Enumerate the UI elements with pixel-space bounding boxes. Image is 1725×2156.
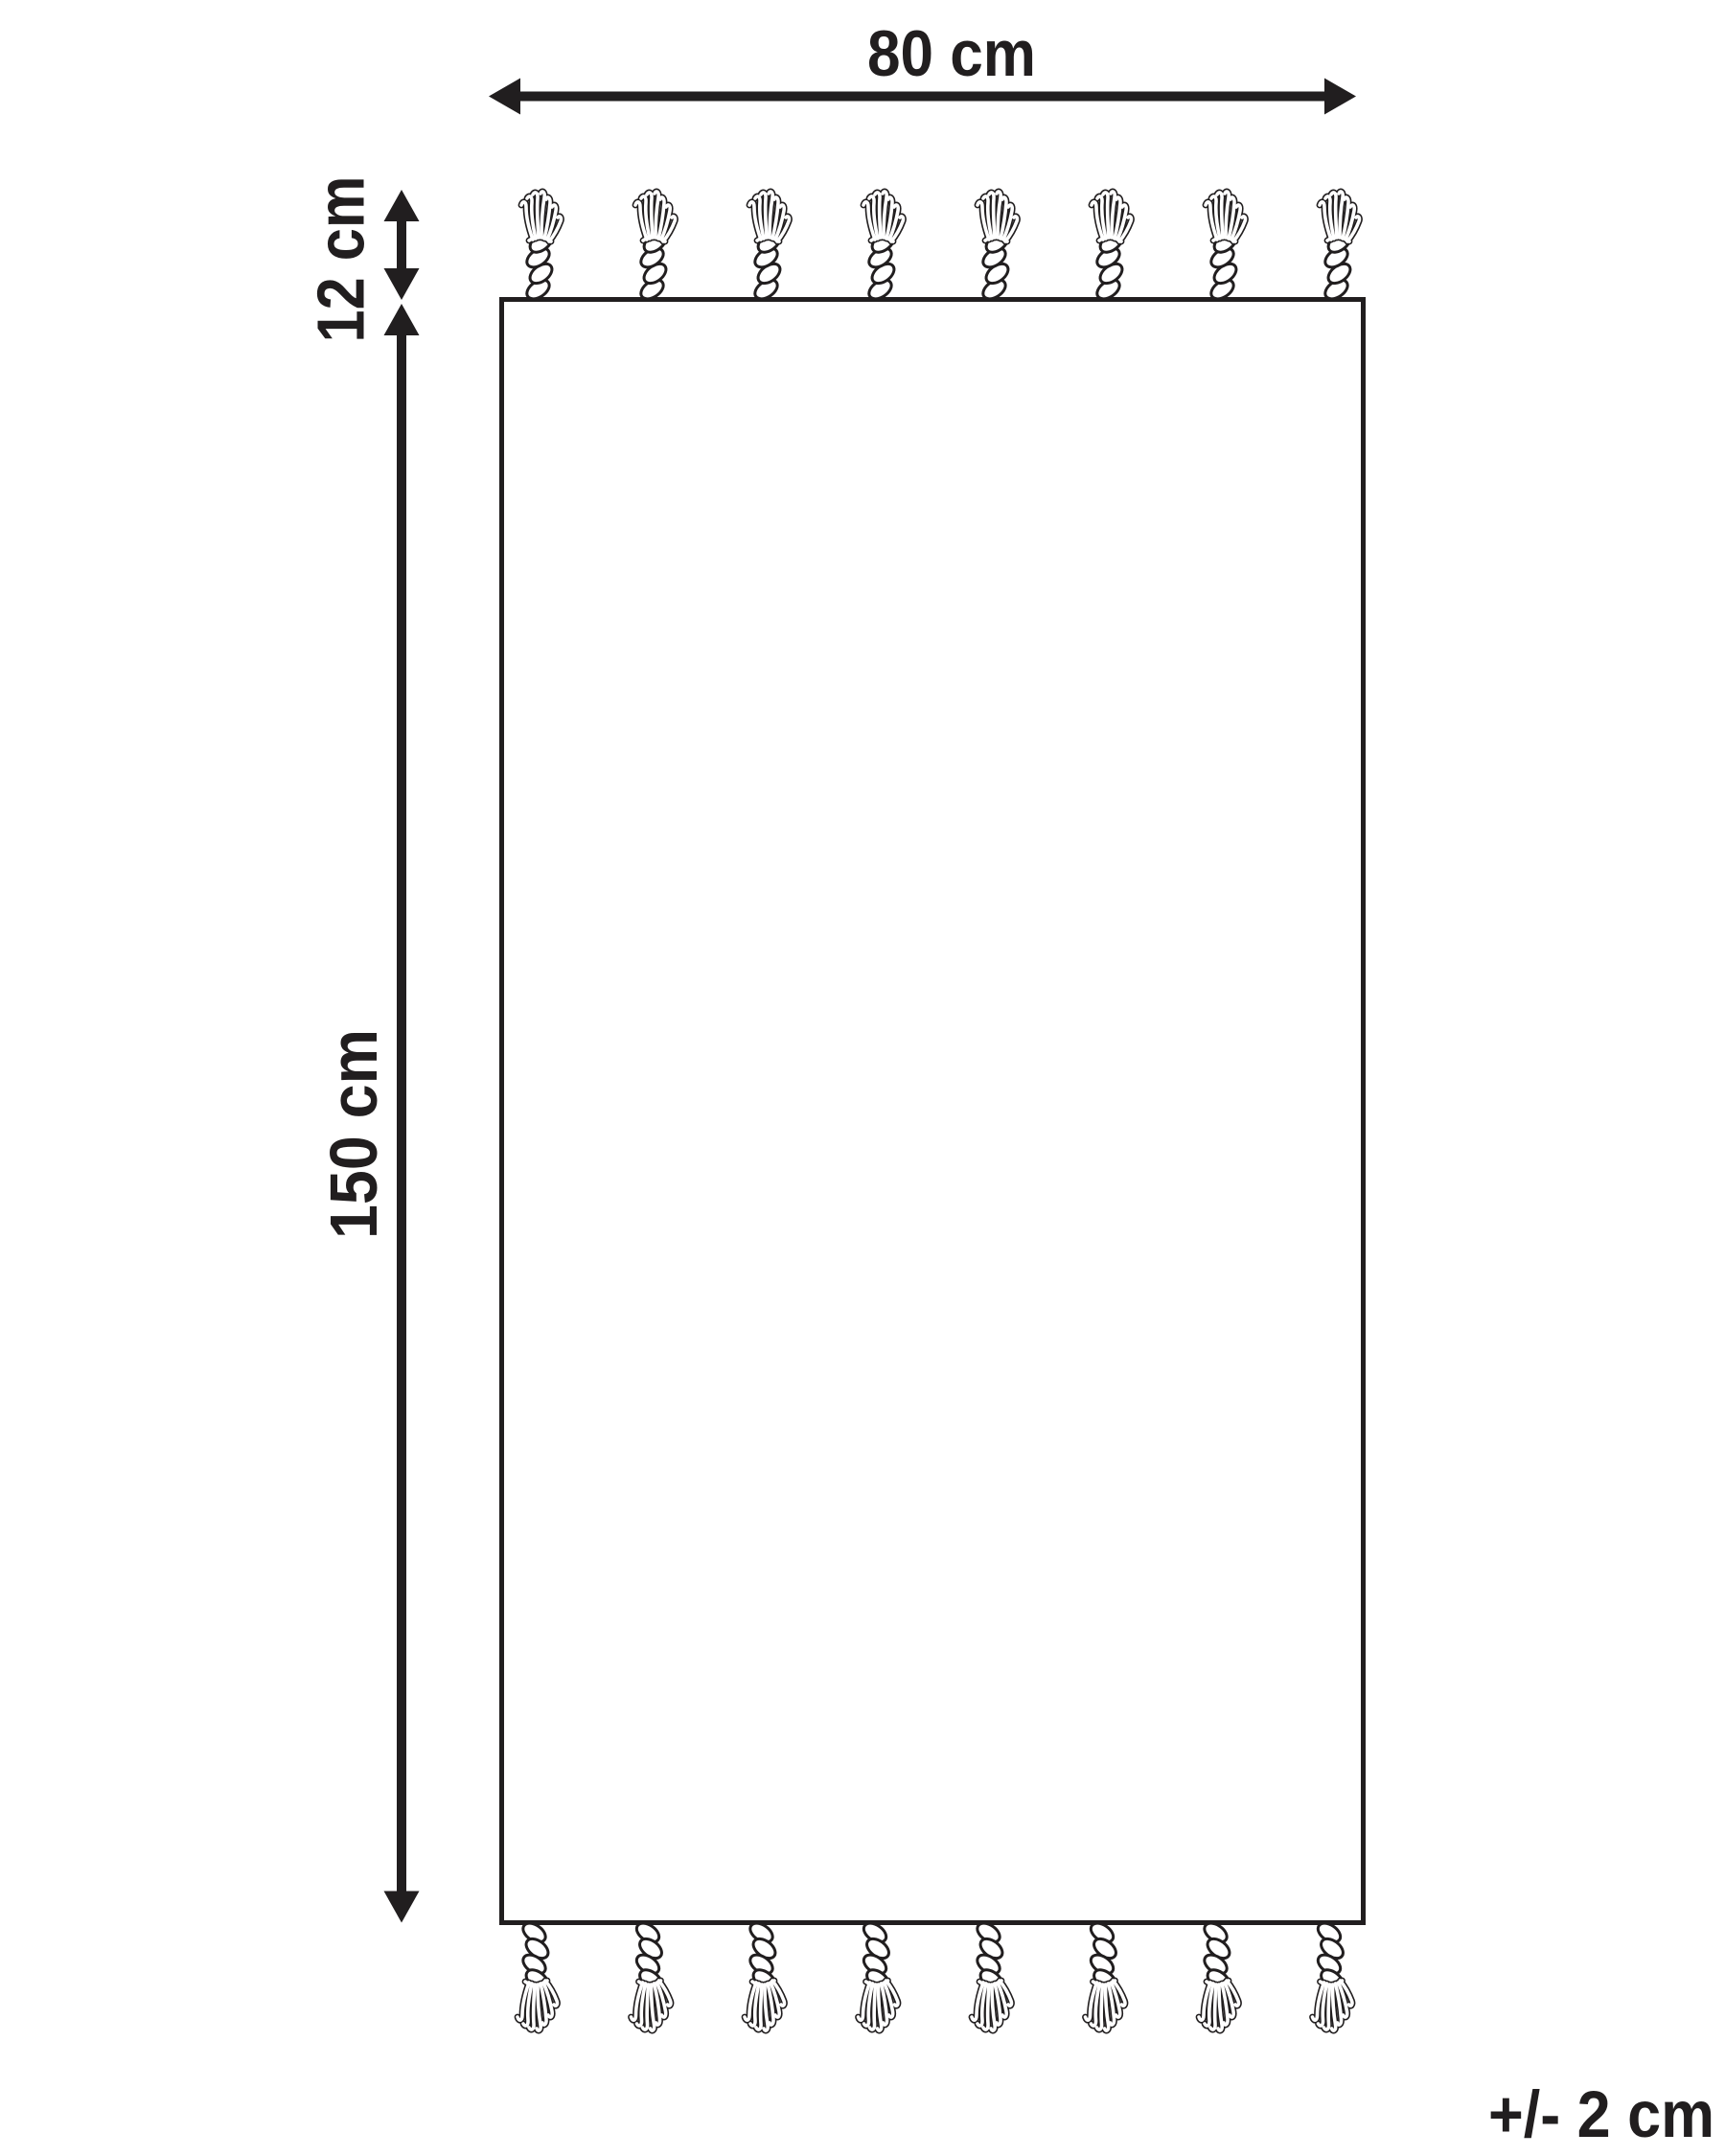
svg-text:80 cm: 80 cm bbox=[867, 17, 1036, 90]
svg-text:12 cm: 12 cm bbox=[304, 176, 379, 343]
svg-text:150 cm: 150 cm bbox=[316, 1029, 391, 1239]
svg-text:+/- 2 cm: +/- 2 cm bbox=[1488, 2077, 1714, 2151]
